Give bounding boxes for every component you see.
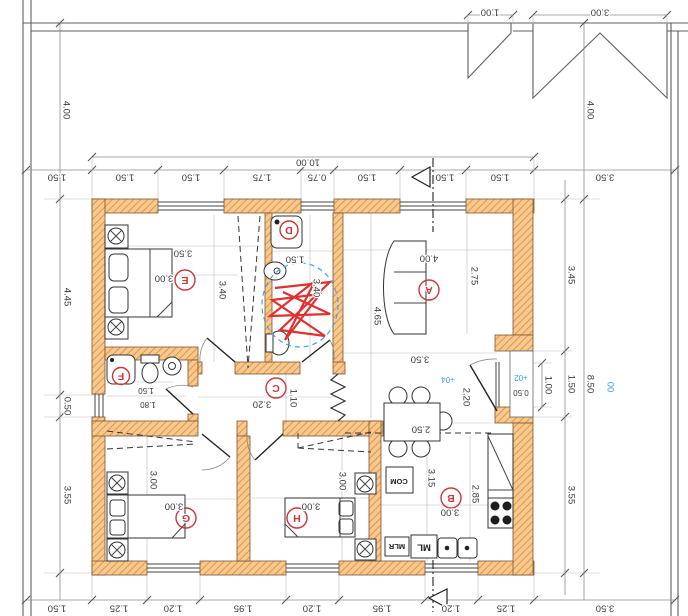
dim-bottom-4: 1.95 xyxy=(373,602,392,613)
dim-site-left: 1.50 xyxy=(48,171,67,182)
dim-top-1: 1.50 xyxy=(182,171,201,182)
dim-d-depth: 3.40 xyxy=(310,279,321,298)
dim-f-width-full: 1.80 xyxy=(140,400,156,409)
dim-top-4: 1.50 xyxy=(358,171,377,182)
dim-right-1: 1.50 xyxy=(565,375,576,394)
revision-cloud xyxy=(262,263,338,347)
dim-site-bottom-left: 1.50 xyxy=(48,602,67,613)
dim-c-width: 3.20 xyxy=(253,398,272,409)
dim-bottom-3: 1.20 xyxy=(303,602,322,613)
dim-entry-opening: 1.00 xyxy=(542,376,553,395)
dim-right-0: 3.45 xyxy=(565,266,576,285)
room-label-c: C xyxy=(272,382,280,394)
dim-f-width: 1.50 xyxy=(138,386,154,395)
dim-b-depth: 3.15 xyxy=(425,469,436,488)
dim-right-2: 3.55 xyxy=(565,486,576,505)
dim-entry-clear: 2.20 xyxy=(460,388,471,407)
dim-b-table: 2.50 xyxy=(412,423,431,434)
dim-top-0: 1.50 xyxy=(116,171,135,182)
dim-bottom-5: 1.20 xyxy=(442,602,461,613)
floor-plan-canvas: 1.00 3.00 4.00 4.00 10.00 1.50 1.50 1.50… xyxy=(0,0,688,616)
door-leaf-room-g xyxy=(202,434,230,457)
door-leaf-room-f xyxy=(166,389,193,414)
dim-canopy-large: 3.00 xyxy=(591,6,610,17)
dim-site-top-left: 4.00 xyxy=(60,101,71,120)
dim-e-depth: 3.40 xyxy=(216,281,227,300)
dim-d-width: 1.50 xyxy=(286,253,305,264)
dim-left-0: 4.45 xyxy=(61,288,72,307)
dim-top-3: 0.75 xyxy=(308,171,327,182)
dining-chair xyxy=(389,387,407,405)
room-label-h: H xyxy=(293,512,301,524)
dim-site-bottom-right: 3.50 xyxy=(596,602,615,613)
dim-top-2: 1.75 xyxy=(253,171,272,182)
level-floor: +04 xyxy=(441,375,455,384)
door-leaf-room-e xyxy=(207,338,235,362)
dim-left-2: 3.55 xyxy=(61,486,72,505)
dim-datum: 00 xyxy=(604,382,615,393)
floor-plan-drawing: 1.00 3.00 4.00 4.00 10.00 1.50 1.50 1.50… xyxy=(0,0,688,616)
dim-h-depth: 3.00 xyxy=(336,472,347,491)
dim-a-depth: 4.65 xyxy=(371,307,382,326)
room-label-g: G xyxy=(182,512,190,524)
dim-c-height: 1.10 xyxy=(287,389,298,408)
room-label-d: D xyxy=(285,224,293,236)
dim-bottom-0: 1.25 xyxy=(110,602,129,613)
dim-g-width: 3.00 xyxy=(165,500,184,511)
dim-h-width: 3.00 xyxy=(302,500,321,511)
dim-site-right: 3.50 xyxy=(596,171,615,182)
room-label-a: A xyxy=(425,284,433,296)
dim-bottom-6: 1.25 xyxy=(497,602,516,613)
room-d-bathroom xyxy=(262,216,338,355)
dim-overall-height: 8.50 xyxy=(584,375,595,394)
dim-top-5: 1.50 xyxy=(436,171,455,182)
door-leaf-entry xyxy=(470,365,497,411)
dim-step-width: 0.50 xyxy=(513,388,529,397)
opening-zigzag xyxy=(331,374,345,421)
dim-a-sofa: 2.75 xyxy=(468,267,479,286)
label-com: COM xyxy=(390,477,408,486)
dim-b-inner: 2.85 xyxy=(469,485,480,504)
level-step: +02 xyxy=(514,373,528,382)
room-label-f: F xyxy=(117,370,124,382)
door-leaf-room-h xyxy=(255,434,283,460)
room-label-b: B xyxy=(447,492,455,504)
dim-bottom-1: 1.20 xyxy=(164,602,183,613)
dim-e-width: 3.50 xyxy=(174,247,193,258)
dim-top-6: 1.50 xyxy=(491,171,510,182)
dim-bottom-2: 1.95 xyxy=(234,602,253,613)
canopy-small xyxy=(468,23,511,78)
room-g-bed xyxy=(107,472,185,561)
dim-a-lower: 3.50 xyxy=(411,353,430,364)
canopy-large xyxy=(533,23,667,98)
room-label-e: E xyxy=(181,274,188,286)
dim-site-top-right: 4.00 xyxy=(584,101,595,120)
kitchen-fixtures xyxy=(384,387,513,558)
dim-left-1: 0.50 xyxy=(61,397,72,416)
dim-overall-width: 10.00 xyxy=(296,156,320,167)
doors xyxy=(166,338,533,470)
label-ml: ML xyxy=(417,541,431,552)
entry-step xyxy=(510,351,533,417)
dim-e-bed: 3.00 xyxy=(155,272,174,283)
dim-canopy-small: 1.00 xyxy=(481,6,500,17)
canopy-outlines xyxy=(468,23,667,98)
label-mlr: MLR xyxy=(388,542,405,551)
dim-a-width: 4.00 xyxy=(420,252,439,263)
dim-g-depth: 3.00 xyxy=(147,471,158,490)
dim-b-width: 3.00 xyxy=(441,506,460,517)
